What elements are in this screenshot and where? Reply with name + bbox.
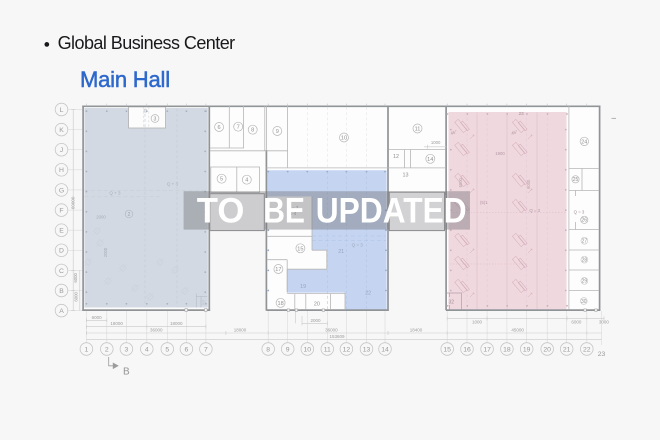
svg-text:10: 10 <box>304 346 312 353</box>
svg-text:3: 3 <box>154 116 157 122</box>
svg-text:2000: 2000 <box>310 318 321 323</box>
svg-text:3000: 3000 <box>599 319 610 324</box>
svg-text:60000: 60000 <box>71 196 76 209</box>
svg-text:15: 15 <box>443 346 451 353</box>
svg-text:24: 24 <box>581 139 587 145</box>
svg-text:4: 4 <box>145 346 149 353</box>
svg-text:19: 19 <box>300 284 306 290</box>
svg-text:6: 6 <box>185 346 189 353</box>
svg-text:D: D <box>59 248 64 255</box>
svg-text:G: G <box>59 187 64 194</box>
svg-text:J: J <box>60 147 63 154</box>
svg-text:6000: 6000 <box>458 178 463 188</box>
svg-text:10: 10 <box>341 136 347 142</box>
svg-text:36000: 36000 <box>325 328 338 333</box>
svg-text:C: C <box>59 268 64 275</box>
svg-text:14: 14 <box>381 346 389 353</box>
svg-text:18: 18 <box>277 301 283 307</box>
svg-text:13: 13 <box>363 346 371 353</box>
svg-text:K: K <box>59 127 64 134</box>
svg-text:7: 7 <box>237 125 240 131</box>
svg-text:9: 9 <box>276 129 279 135</box>
svg-text:23: 23 <box>598 351 606 358</box>
svg-text:Q + 3: Q + 3 <box>167 181 179 186</box>
svg-text:6000: 6000 <box>73 273 78 283</box>
svg-text:5: 5 <box>220 177 223 183</box>
svg-text:16: 16 <box>463 346 471 353</box>
svg-text:B: B <box>59 288 64 295</box>
svg-text:32: 32 <box>449 300 455 306</box>
svg-text:8: 8 <box>266 346 270 353</box>
svg-text:21: 21 <box>338 249 344 255</box>
svg-text:6000: 6000 <box>526 179 531 189</box>
svg-text:153609: 153609 <box>329 334 345 339</box>
svg-text:15: 15 <box>297 246 303 252</box>
svg-text:(5)1: (5)1 <box>480 200 488 205</box>
svg-text:E: E <box>59 228 64 235</box>
svg-text:21: 21 <box>563 346 571 353</box>
svg-text:B: B <box>123 367 130 378</box>
svg-text:H: H <box>59 167 64 174</box>
svg-text:26: 26 <box>582 218 588 224</box>
svg-text:20: 20 <box>314 302 320 308</box>
svg-text:18000: 18000 <box>110 321 123 326</box>
svg-text:28: 28 <box>582 257 588 263</box>
svg-text:12: 12 <box>393 154 399 160</box>
svg-text:F: F <box>59 208 63 215</box>
svg-text:30: 30 <box>581 299 587 305</box>
svg-text:11: 11 <box>324 346 331 353</box>
svg-text:L: L <box>60 107 64 114</box>
svg-text:3: 3 <box>125 346 129 353</box>
svg-text:8: 8 <box>251 128 254 134</box>
svg-text:2000: 2000 <box>103 247 108 257</box>
svg-text:36000: 36000 <box>150 328 163 333</box>
svg-text:17: 17 <box>275 267 281 273</box>
svg-text:22: 22 <box>365 291 371 297</box>
svg-text:11: 11 <box>415 127 421 133</box>
svg-text:17: 17 <box>483 346 491 353</box>
svg-text:9: 9 <box>286 346 290 353</box>
svg-text:5: 5 <box>165 346 169 353</box>
svg-text:6000: 6000 <box>92 315 103 320</box>
svg-text:Q = 3: Q = 3 <box>352 243 364 248</box>
svg-text:45000: 45000 <box>511 328 524 333</box>
svg-text:1: 1 <box>202 301 204 305</box>
svg-text:29: 29 <box>582 279 588 285</box>
svg-text:27: 27 <box>582 239 588 245</box>
svg-text:TOBEUPDATED: TOBEUPDATED <box>197 191 467 230</box>
svg-text:A: A <box>59 308 64 315</box>
svg-text:Q = 3: Q = 3 <box>529 208 540 213</box>
svg-text:6000: 6000 <box>571 319 582 324</box>
svg-text:19: 19 <box>523 346 531 353</box>
svg-text:22: 22 <box>583 346 591 353</box>
svg-text:4: 4 <box>245 178 248 184</box>
svg-text:13: 13 <box>403 173 409 179</box>
svg-text:14: 14 <box>427 157 433 163</box>
svg-text:2000: 2000 <box>96 214 106 219</box>
svg-text:6: 6 <box>218 125 221 131</box>
svg-text:18400: 18400 <box>410 328 423 333</box>
svg-text:Q = 3: Q = 3 <box>574 210 585 215</box>
svg-text:7: 7 <box>204 346 208 353</box>
svg-text:1000: 1000 <box>472 319 483 324</box>
svg-text:23: 23 <box>519 111 525 116</box>
svg-text:6000: 6000 <box>73 292 78 302</box>
svg-text:18: 18 <box>503 346 511 353</box>
svg-text:18000: 18000 <box>234 328 247 333</box>
svg-text:12: 12 <box>343 346 351 353</box>
svg-text:1: 1 <box>85 346 89 353</box>
svg-text:18000: 18000 <box>170 321 183 326</box>
svg-text:1000: 1000 <box>431 140 441 145</box>
svg-text:25: 25 <box>573 177 579 183</box>
svg-text:20: 20 <box>543 346 551 353</box>
svg-text:2: 2 <box>105 346 109 353</box>
svg-text:2: 2 <box>128 212 131 218</box>
svg-text:Q + 3: Q + 3 <box>109 190 121 195</box>
svg-text:1900: 1900 <box>495 151 505 156</box>
